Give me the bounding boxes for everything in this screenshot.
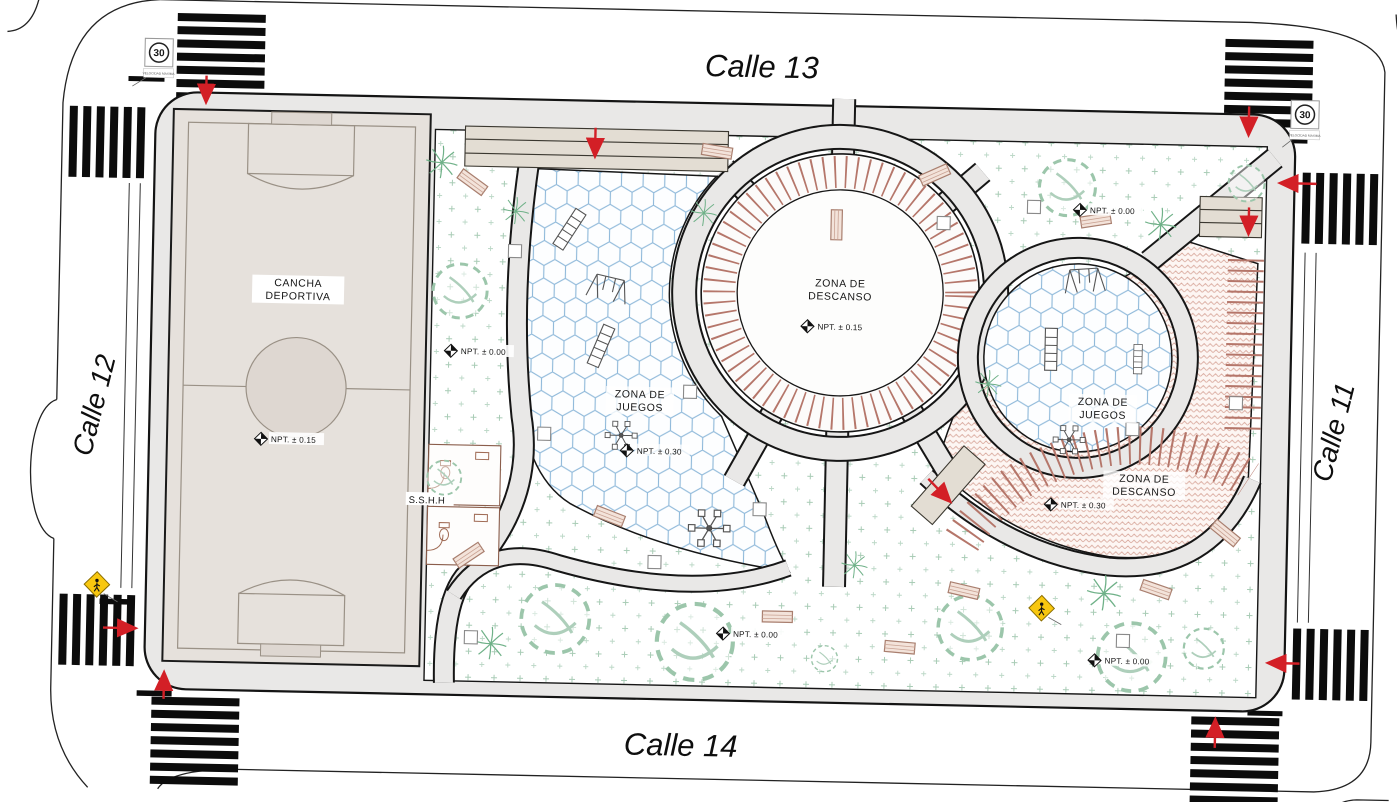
planter-icon [648,555,661,568]
npt-bottom-right-green: NPT. ± 0.00 [1104,657,1149,667]
crosswalk-calle13-west [176,13,266,102]
cancha-label-line2: DEPORTIVA [265,290,330,303]
tree-icon [811,645,838,672]
slide-ladder-icon [1133,344,1142,374]
entrance-arrow [1269,663,1300,664]
planter-icon [753,503,766,516]
entrance-arrow [1249,207,1250,233]
speed-limit-caption: VELOCIDAD MAXIMA [1289,133,1322,138]
entrance-arrow [1249,106,1250,134]
right-descanso-label-line1: ZONA DE [1119,473,1170,486]
planter-icon [508,244,521,257]
tree-icon [433,263,488,318]
tree-icon [427,460,462,495]
crosswalk-calle11-south [1292,628,1369,701]
street-label-calle-13: Calle 13 [705,48,819,85]
planter-icon [1126,422,1139,435]
npt-bottom-center-green: NPT. ± 0.00 [733,630,778,640]
slide-ladder-icon [1045,328,1058,370]
entrance-arrow [103,628,135,629]
planter-icon [937,216,950,229]
planter-icon [1229,397,1242,410]
site-plan-canvas: S.S.H.H [0,0,1397,802]
entrance-arrow [1281,183,1317,184]
left-juegos-label-line2: JUEGOS [616,401,663,414]
central-descanso-label-line1: ZONA DE [815,277,866,290]
tree-icon [1183,628,1224,669]
tree-icon [1039,159,1096,216]
npt-top-right-green: NPT. ± 0.00 [1090,206,1135,216]
npt-cancha: NPT. ± 0.15 [271,435,316,445]
planter-icon [1116,634,1129,647]
pedestrian-crossing-sign-icon [84,571,110,597]
speed-limit-value: 30 [153,48,165,59]
tree-icon [656,603,734,681]
npt-left-juegos: NPT. ± 0.30 [637,447,682,457]
street-label-calle-12: Calle 12 [66,351,121,459]
entrance-arrow [206,76,207,102]
sports-field [162,109,431,666]
crosswalk-calle12-south [58,594,135,667]
crosswalk-calle14-east [1190,716,1280,802]
site-plan-drawing: S.S.H.H [0,0,1397,802]
entrance-arrow [164,673,165,699]
speed-limit-value: 30 [1299,110,1311,121]
planter-icon [538,427,551,440]
street-label-calle-11: Calle 11 [1306,380,1361,485]
entrance-arrow [1215,720,1216,748]
bench-icon [762,611,792,623]
tree-icon [938,595,1003,660]
right-descanso-label-line2: DESCANSO [1112,486,1176,499]
central-descanso-label-line2: DESCANSO [808,290,872,303]
restrooms-label: S.S.H.H [409,495,446,507]
street-label-calle-14: Calle 14 [623,726,737,763]
tree-icon [521,584,590,653]
crosswalk-calle12-north [68,106,145,179]
bench-icon [884,640,915,654]
planter-icon [464,631,477,644]
cancha-label-line1: CANCHA [274,277,322,290]
npt-right-descanso: NPT. ± 0.30 [1061,501,1106,511]
right-juegos-label-line1: ZONA DE [1078,396,1129,409]
speed-limit-caption: VELOCIDAD MAXIMA [143,71,176,76]
entrance-arrow [595,128,596,156]
npt-left-green: NPT. ± 0.00 [461,347,506,357]
planter-icon [1027,200,1040,213]
bench-icon [831,210,843,240]
right-juegos-label-line2: JUEGOS [1079,409,1126,422]
planter-icon [683,385,696,398]
npt-central: NPT. ± 0.15 [817,322,862,332]
left-juegos-label-line1: ZONA DE [615,388,666,401]
playground-zone-right [966,246,1191,471]
tree-icon [1228,165,1265,202]
